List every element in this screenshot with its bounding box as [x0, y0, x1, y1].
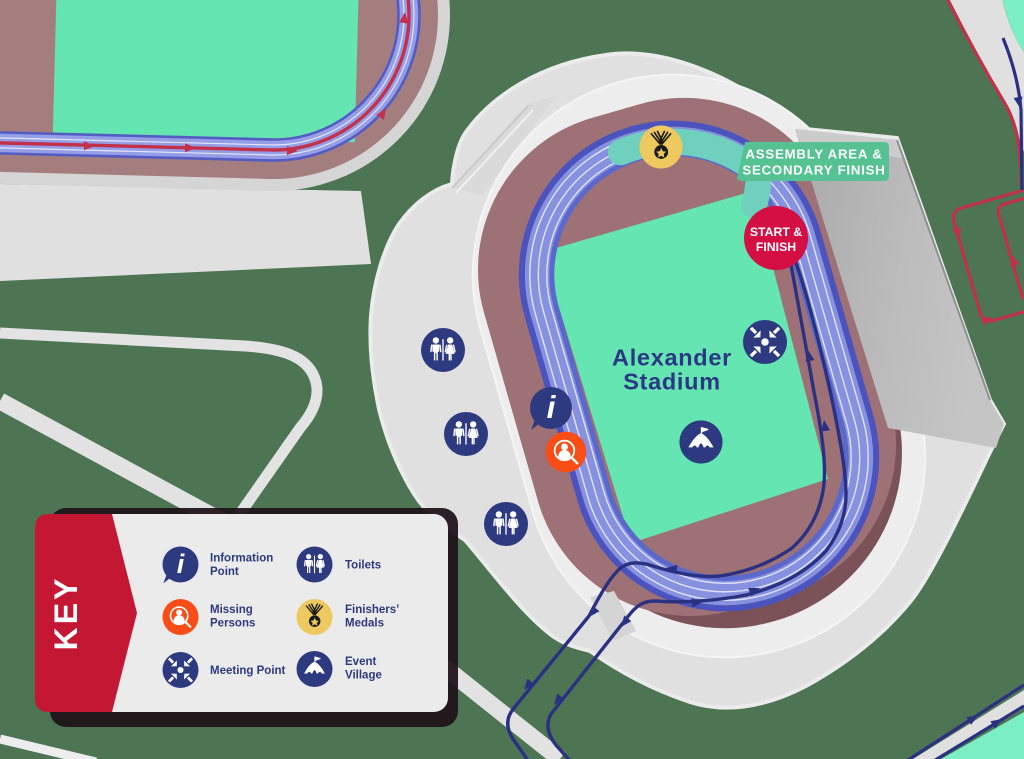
- svg-text:Point: Point: [210, 566, 239, 578]
- svg-text:Information: Information: [210, 553, 273, 565]
- svg-text:Toilets: Toilets: [345, 560, 381, 572]
- svg-text:Alexander: Alexander: [612, 345, 732, 371]
- svg-text:ASSEMBLY AREA &: ASSEMBLY AREA &: [745, 147, 882, 162]
- svg-text:Village: Village: [345, 670, 382, 682]
- svg-text:Meeting Point: Meeting Point: [210, 665, 286, 677]
- svg-text:Finishers’: Finishers’: [345, 604, 399, 616]
- svg-text:FINISH: FINISH: [756, 240, 796, 254]
- svg-text:Persons: Persons: [210, 618, 255, 630]
- svg-text:Missing: Missing: [210, 604, 253, 616]
- svg-text:KEY: KEY: [48, 576, 84, 651]
- svg-text:START &: START &: [750, 225, 802, 239]
- svg-text:SECONDARY FINISH: SECONDARY FINISH: [742, 163, 885, 178]
- svg-text:Medals: Medals: [345, 618, 384, 630]
- svg-text:Event: Event: [345, 656, 376, 668]
- svg-text:Stadium: Stadium: [623, 369, 721, 395]
